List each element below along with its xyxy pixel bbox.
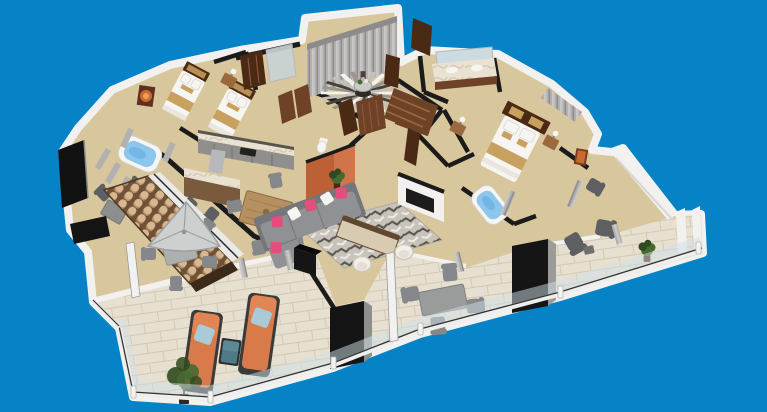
- round-entry-table: [354, 81, 372, 92]
- umbrella-chair-2: [169, 276, 183, 291]
- umbrella-chair-3: [202, 255, 217, 269]
- floorplan-render: [0, 0, 767, 412]
- master-bathroom: [432, 47, 497, 90]
- wardrobe: [240, 50, 266, 90]
- teal-side-table: [218, 338, 241, 367]
- barrel-chair-2: [395, 245, 413, 260]
- floorplan-svg: [0, 0, 767, 412]
- umbrella-chair-1: [141, 247, 156, 261]
- glass-shower: [266, 44, 296, 82]
- foyer-closet: [384, 54, 400, 88]
- orange-wall-art: [137, 85, 156, 107]
- balcony-wall-tv: [58, 140, 88, 208]
- outdoor-chair-4: [441, 263, 459, 282]
- barrel-chair-1: [353, 257, 371, 272]
